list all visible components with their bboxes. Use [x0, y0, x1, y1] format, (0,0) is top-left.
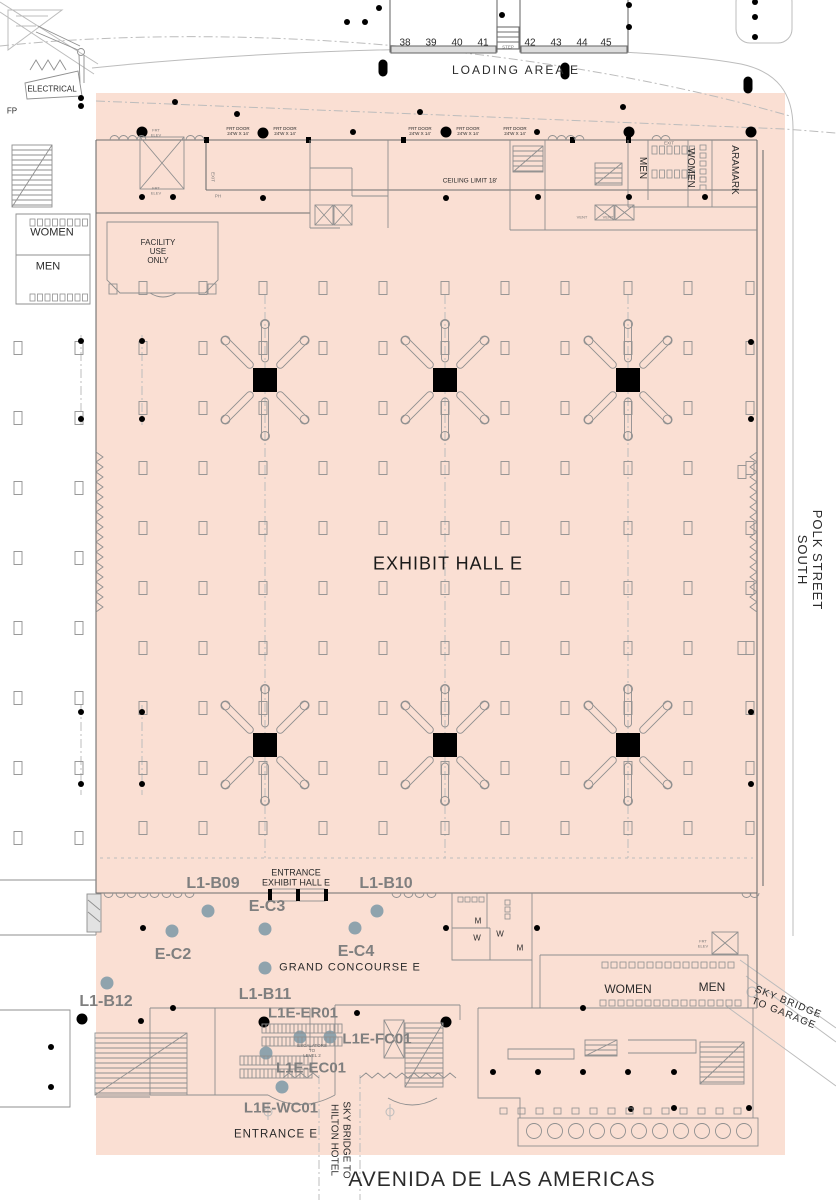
small-dot: [535, 194, 541, 200]
column-marker: [75, 622, 83, 635]
door-jamb: [626, 137, 631, 143]
small-dot: [748, 781, 754, 787]
fixture: [38, 294, 43, 301]
small-dot: [534, 925, 540, 931]
fixture: [75, 294, 80, 301]
small-dot: [170, 194, 176, 200]
small-dot: [499, 12, 505, 18]
traffic-island: [736, 0, 792, 43]
fixture: [60, 294, 65, 301]
location-marker-dot: [349, 922, 362, 935]
small-dot: [350, 129, 356, 135]
location-marker-dot: [276, 1081, 289, 1094]
fixture: [60, 219, 65, 226]
column-marker: [14, 692, 22, 705]
small-dot: [417, 109, 423, 115]
small-dot: [78, 416, 84, 422]
column-marker: [14, 412, 22, 425]
dock-platform-right: [520, 0, 628, 52]
fixture: [83, 294, 88, 301]
small-dot: [139, 781, 145, 787]
fixture: [83, 219, 88, 226]
location-marker-dot: [259, 923, 272, 936]
location-marker-dot: [260, 1047, 273, 1060]
fixture: [45, 219, 50, 226]
small-dot: [752, 34, 758, 40]
small-dot: [260, 195, 266, 201]
small-dot: [139, 194, 145, 200]
dock-step: [497, 27, 519, 49]
location-marker-dot: [166, 925, 179, 938]
column-marker: [14, 342, 22, 355]
west-corridor-walls: [0, 880, 96, 935]
small-dot: [376, 5, 382, 11]
small-dot: [671, 1105, 677, 1111]
small-dot: [490, 1069, 496, 1075]
left-restrooms: [16, 214, 90, 304]
small-dot: [78, 338, 84, 344]
small-dot: [748, 709, 754, 715]
mast-lines: [36, 26, 84, 83]
bollard-pill: [744, 77, 753, 94]
fixture: [68, 219, 73, 226]
small-dot: [138, 1018, 144, 1024]
column-marker: [14, 622, 22, 635]
small-dot: [48, 1044, 54, 1050]
fixture: [53, 219, 58, 226]
door-jamb: [204, 137, 209, 143]
small-dot: [752, 14, 758, 20]
small-dot: [752, 0, 758, 5]
small-dot: [234, 111, 240, 117]
floor-plan-drawing: [0, 0, 836, 1200]
truss-base: [433, 368, 457, 392]
small-dot: [748, 416, 754, 422]
fixture: [30, 219, 35, 226]
bollard-dot: [441, 127, 452, 138]
small-dot: [671, 1069, 677, 1075]
transformer-zigzag: [30, 60, 66, 70]
truss-base: [253, 733, 277, 757]
column-marker: [75, 692, 83, 705]
small-dot: [362, 19, 368, 25]
small-dot: [625, 1069, 631, 1075]
small-dot: [626, 2, 632, 8]
entrance-door-post: [268, 889, 272, 901]
small-dot: [443, 195, 449, 201]
small-dot: [746, 1105, 752, 1111]
small-dot: [354, 1010, 360, 1016]
fixture: [45, 294, 50, 301]
column-marker: [14, 552, 22, 565]
bollard-pill: [561, 63, 570, 80]
small-dot: [78, 709, 84, 715]
stairs: [12, 145, 52, 207]
small-dot: [140, 925, 146, 931]
small-dot: [172, 99, 178, 105]
southwest-room: [0, 1010, 70, 1107]
location-marker-dot: [202, 905, 215, 918]
fixture: [68, 294, 73, 301]
floor-plan-page: LOADING AREA E 38 39 40 41 42 43 44 45 S…: [0, 0, 836, 1200]
bollard-pill: [379, 60, 388, 77]
column-marker: [75, 762, 83, 775]
bollard-dot: [624, 127, 635, 138]
small-dot: [626, 24, 632, 30]
small-dot: [78, 781, 84, 787]
fixture: [75, 219, 80, 226]
small-dot: [620, 104, 626, 110]
location-marker-dot: [101, 977, 114, 990]
location-marker-dot: [371, 905, 384, 918]
small-dot: [535, 1069, 541, 1075]
bollard-dot: [259, 1017, 270, 1028]
small-dot: [580, 1069, 586, 1075]
small-dot: [626, 194, 632, 200]
small-dot: [580, 1005, 586, 1011]
dock-edge-left: [391, 46, 496, 53]
door-jamb: [401, 137, 406, 143]
bollard-dot: [77, 1014, 88, 1025]
electrical-room: [25, 71, 82, 99]
small-dot: [139, 709, 145, 715]
fixture: [53, 294, 58, 301]
small-dot: [139, 416, 145, 422]
small-dot: [344, 19, 350, 25]
entrance-door-post: [324, 889, 328, 901]
dock-platform-left: [390, 0, 497, 52]
bollard-dot: [258, 128, 269, 139]
location-marker-dot: [259, 962, 272, 975]
small-dot: [748, 339, 754, 345]
column-marker: [75, 552, 83, 565]
column-marker: [14, 482, 22, 495]
small-dot: [534, 129, 540, 135]
small-dot: [78, 103, 84, 109]
column-marker: [75, 832, 83, 845]
small-dot: [78, 95, 84, 101]
bollard-dot: [746, 127, 757, 138]
ramp-hatch: [8, 10, 62, 50]
column-marker: [14, 762, 22, 775]
left-restroom-walls: [16, 214, 90, 304]
fixture: [30, 294, 35, 301]
dock-step-treads: [497, 32, 519, 42]
column-marker: [14, 832, 22, 845]
truss-base: [433, 733, 457, 757]
hall-footprint: [96, 93, 785, 1155]
small-dot: [443, 925, 449, 931]
entrance-door-post: [296, 889, 300, 901]
small-dot: [702, 194, 708, 200]
small-dot: [48, 1084, 54, 1090]
truss-base: [616, 733, 640, 757]
bollard-dot: [441, 1017, 452, 1028]
small-dot: [170, 1005, 176, 1011]
dock-edge-right: [521, 46, 627, 53]
fixture: [38, 219, 43, 226]
column-marker: [75, 482, 83, 495]
small-dot: [139, 338, 145, 344]
loading-dock-structures: [390, 0, 628, 53]
truss-base: [616, 368, 640, 392]
truss-base: [253, 368, 277, 392]
